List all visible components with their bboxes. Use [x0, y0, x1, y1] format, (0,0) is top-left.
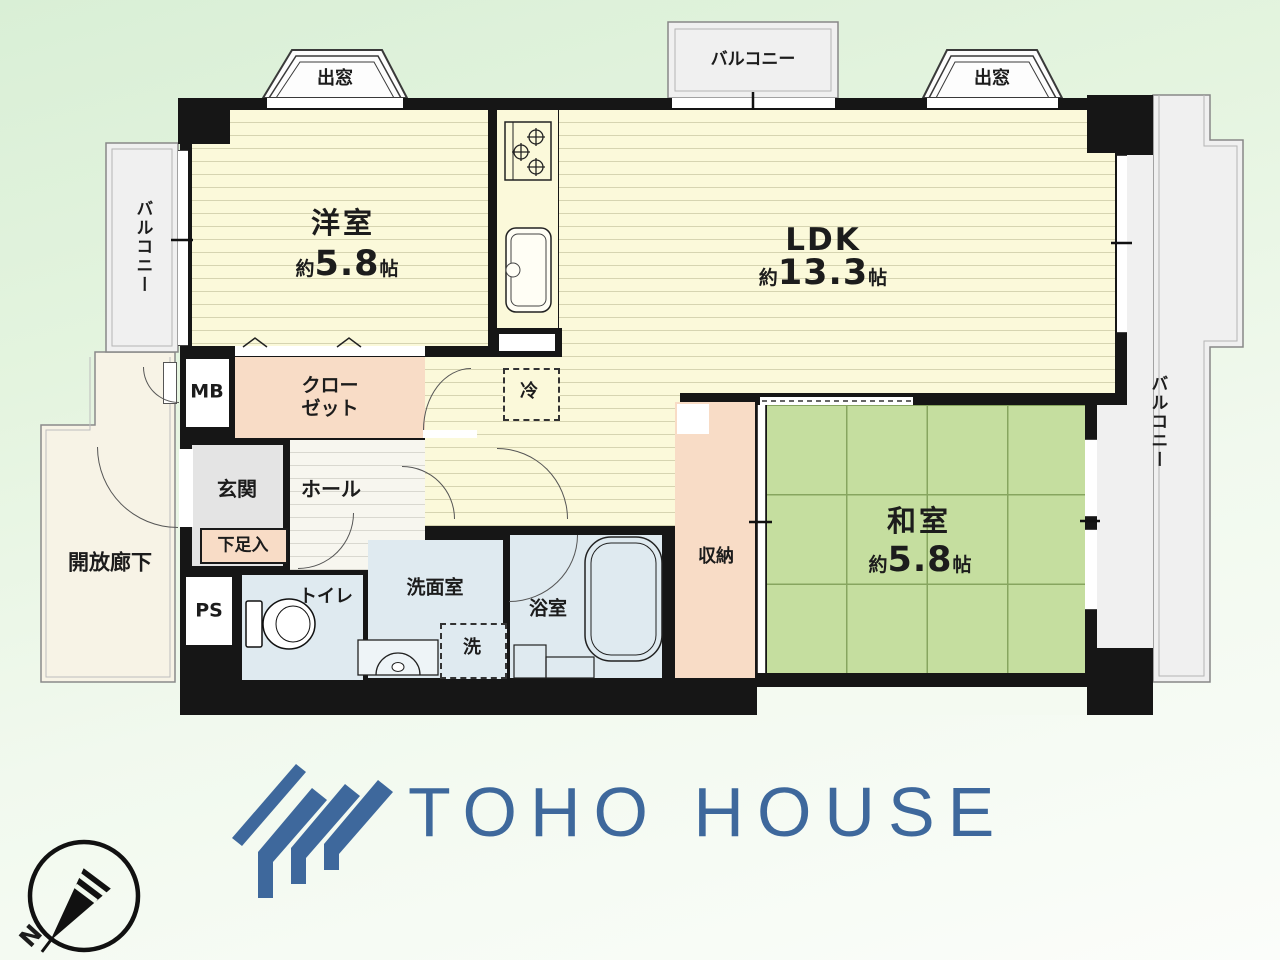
western-room-name: 洋室 [311, 208, 375, 240]
stove-icon [505, 122, 551, 180]
washer-label: 洗 [463, 638, 481, 658]
folding-door-mark [243, 338, 267, 347]
left-balcony-label: バルコニー [133, 200, 152, 295]
storage-label: 収納 [698, 547, 734, 567]
refrigerator-label: 冷 [520, 382, 538, 402]
compass-icon [28, 842, 138, 960]
shoe-cabinet-label: 下足入 [218, 537, 269, 556]
pipe-space-label: PS [195, 601, 223, 622]
top-balcony-label: バルコニー [711, 51, 796, 70]
hall-label: ホール [301, 478, 361, 500]
bay-window-left-label: 出窓 [317, 69, 353, 89]
right-balcony-label: バルコニー [1148, 375, 1167, 470]
bay-window-right-label: 出窓 [974, 69, 1010, 89]
kitchen-hatch [492, 328, 562, 357]
ldk-size: 約 13.3 帖 [759, 254, 887, 293]
japanese-room-name: 和室 [887, 506, 951, 538]
bathroom-label: 浴室 [529, 599, 567, 620]
kitchen-sink-icon [506, 228, 551, 312]
bathtub-icon [585, 537, 662, 661]
window-ticks [171, 92, 1132, 522]
toho-house-logo-mark [232, 764, 393, 898]
open-corridor-label: 開放廊下 [68, 551, 152, 574]
western-room-size: 約 5.8 帖 [295, 245, 398, 284]
toho-house-logo-text: TOHO HOUSE [408, 772, 1007, 852]
meter-box-label: MB [190, 382, 223, 403]
bath-counter [514, 645, 546, 678]
closet-label-line1: クロー [301, 376, 358, 397]
vanity-sink-icon [358, 640, 438, 675]
entrance-label: 玄関 [217, 478, 257, 500]
closet-label-line2: ゼット [301, 399, 358, 420]
floor-plan-page: 出窓 出窓 バルコニー バルコニー バルコニー 開放廊下 洋室 約 5.8 帖 … [0, 0, 1280, 960]
folding-door-mark [337, 338, 361, 347]
bath-counter [546, 657, 594, 678]
washroom-label: 洗面室 [406, 578, 463, 599]
toilet-label: トイレ [299, 587, 353, 607]
japanese-room-size: 約 5.8 帖 [868, 541, 971, 580]
